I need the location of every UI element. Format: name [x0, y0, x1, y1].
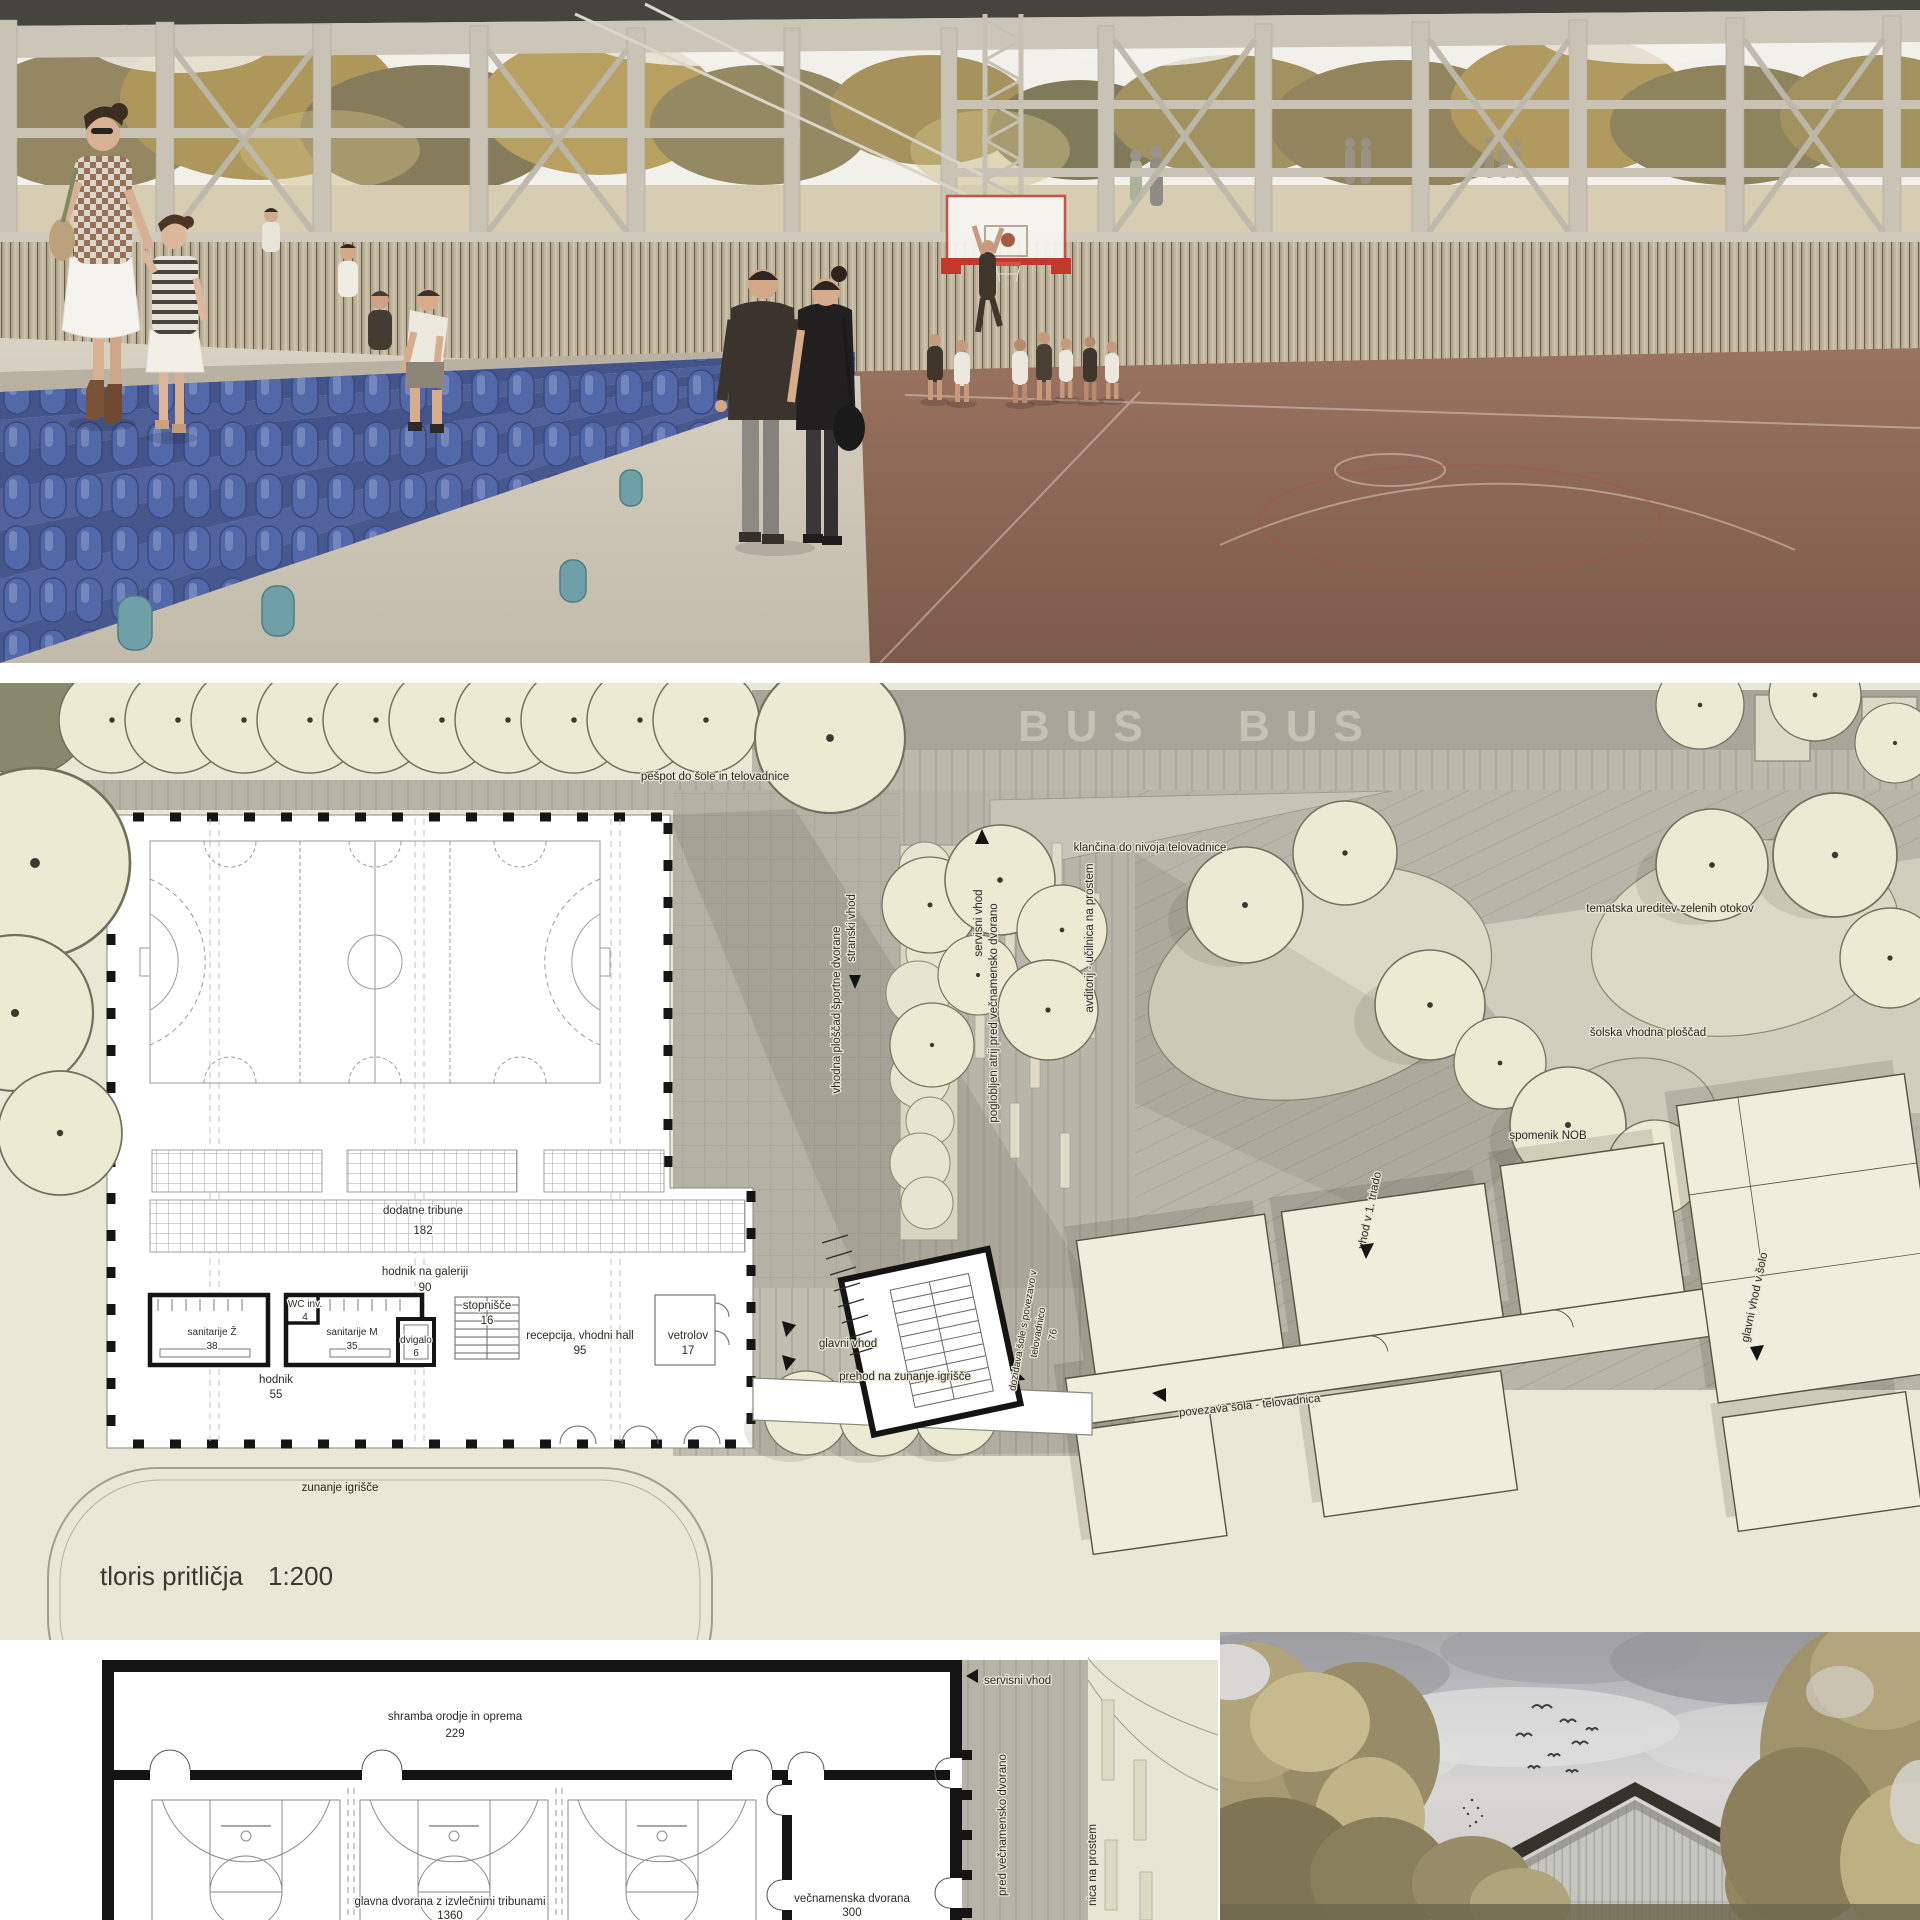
label-poglobljen-atrij: poglobljen atrij pred večnamensko dvoran…	[988, 903, 1000, 1122]
label-servisni-vhod: servisni vhod	[973, 889, 985, 956]
label-klancina: klančina do nivoja telovadnice	[1074, 842, 1227, 854]
room-label-wc-inv: WC inv.	[288, 1299, 322, 1310]
backboard	[947, 196, 1065, 260]
label-spomenik: spomenik NOB	[1509, 1130, 1587, 1142]
room-area-sanitarije-z: 38	[206, 1341, 218, 1352]
bus-marking-right: BUS	[1238, 702, 1379, 751]
road: BUS BUS	[752, 690, 1920, 807]
render-hall-interior-svg	[0, 0, 1920, 663]
room-area-vecnamenska: 300	[842, 1907, 861, 1919]
render-hall-interior	[0, 0, 1920, 663]
render-exterior-svg	[1220, 1632, 1920, 1920]
label-prehod: prehod na zunanje igrišče	[839, 1371, 971, 1383]
room-label-shramba: shramba orodje in oprema	[388, 1711, 523, 1723]
room-label-vecnamenska: večnamenska dvorana	[794, 1893, 910, 1905]
hall-level-plan-svg: shramba orodje in oprema 229 glavna dvor…	[0, 1640, 1218, 1920]
plan-scale: 1:200	[268, 1561, 333, 1591]
label-solska-ploscad: šolska vhodna ploščad	[1590, 1027, 1706, 1039]
room-label-hodnik-galerija: hodnik na galeriji	[382, 1266, 468, 1278]
room-label-dvigalo: dvigalo	[400, 1335, 432, 1346]
room-area-recepcija: 95	[574, 1345, 587, 1357]
label-tematska: tematska ureditev zelenih otokov	[1586, 903, 1754, 915]
presentation-board: { "site_plan": { "caption": { "title": "…	[0, 0, 1920, 1920]
room-area-wc-inv: 4	[302, 1312, 308, 1323]
label-pespot: pešpot do šole in telovadnice	[641, 771, 789, 783]
label-vhodna-ploscad: vhodna ploščad športne dvorane	[831, 927, 843, 1094]
sports-hall-plan: dodatne tribune 182 hodnik na galeriji 9…	[107, 815, 753, 1448]
room-area-dodatne-tribune: 182	[413, 1225, 432, 1237]
label-ucilnica-partial: nica na prostem	[1087, 1824, 1099, 1906]
room-label-dodatne-tribune: dodatne tribune	[383, 1205, 463, 1217]
room-area-stopnisce: 16	[481, 1315, 494, 1327]
room-label-vetrolov: vetrolov	[668, 1330, 709, 1342]
room-label-sanitarije-z: sanitarije Ž	[188, 1325, 237, 1338]
room-area-shramba: 229	[445, 1728, 464, 1740]
label-zunanje: zunanje igrišče	[302, 1482, 379, 1494]
room-area-hodnik: 55	[270, 1389, 283, 1401]
hedge	[1220, 1904, 1920, 1920]
site-plan: BUS BUS dodatne tribune 182 hodni	[0, 683, 1920, 1640]
bus-marking-left: BUS	[1018, 702, 1159, 751]
plan-title: tloris pritličja	[100, 1561, 244, 1591]
room-area-sanitarije-m: 35	[346, 1341, 358, 1352]
render-exterior	[1220, 1632, 1920, 1920]
room-label-recepcija: recepcija, vhodni hall	[526, 1330, 633, 1342]
site-plan-svg: BUS BUS dodatne tribune 182 hodni	[0, 683, 1920, 1640]
label-servisni-vhod-lower: servisni vhod	[984, 1675, 1051, 1687]
label-glavni-vhod: glavni vhod	[819, 1338, 877, 1350]
room-area-vetrolov: 17	[682, 1345, 695, 1357]
room-area-dvigalo: 6	[413, 1348, 419, 1359]
room-area-hodnik-galerija: 90	[419, 1282, 432, 1294]
room-area-glavna-dvorana: 1360	[437, 1910, 463, 1920]
plan-caption: tloris pritličja 1:200	[100, 1561, 333, 1591]
label-stranski-vhod: stranski vhod	[846, 894, 858, 962]
room-label-glavna-dvorana: glavna dvorana z izvlečnimi tribunami	[354, 1896, 545, 1908]
label-avditorij: avditorij - učilnica na prostem	[1084, 864, 1096, 1013]
room-label-stopnisce: stopnišče	[463, 1300, 512, 1312]
room-label-sanitarije-m: sanitarije M	[326, 1327, 377, 1338]
hall-level-plan: shramba orodje in oprema 229 glavna dvor…	[0, 1640, 1218, 1920]
hall-tribunes	[150, 1150, 745, 1252]
label-atrij-partial: pred večnamensko dvorano	[997, 1754, 1009, 1896]
room-label-hodnik: hodnik	[259, 1374, 293, 1386]
